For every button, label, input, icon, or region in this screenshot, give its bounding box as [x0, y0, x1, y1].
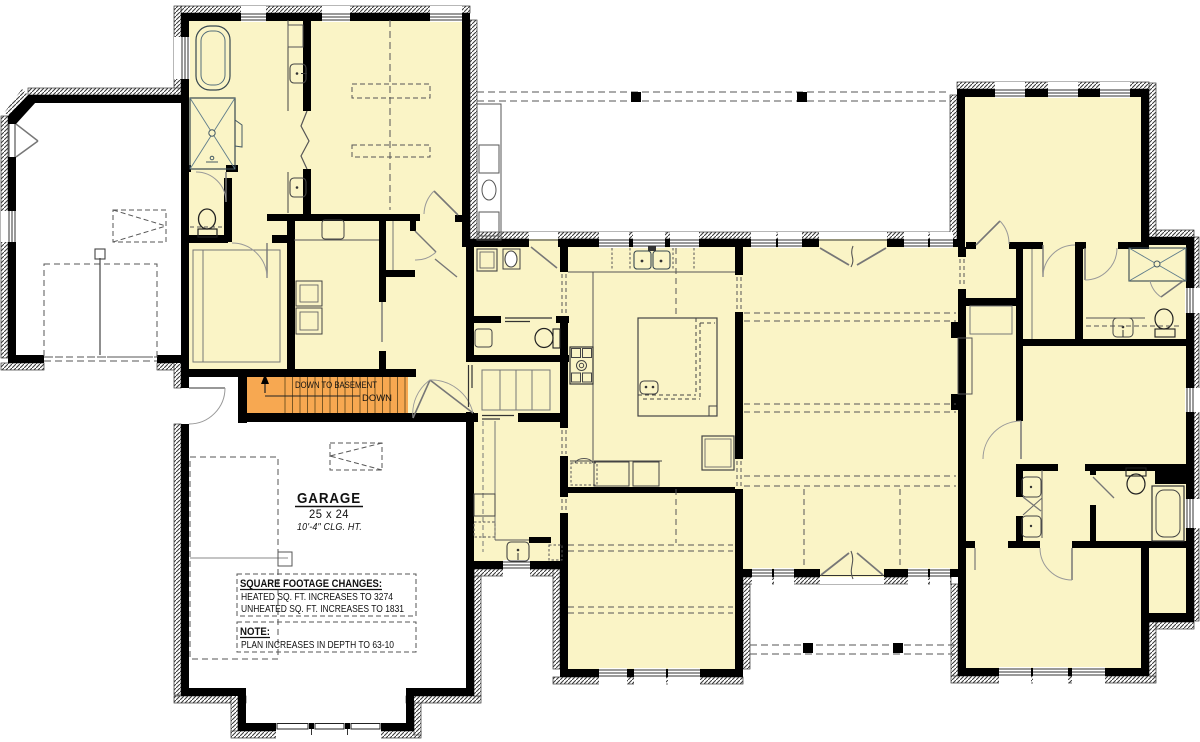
svg-text:DOWN: DOWN [362, 393, 392, 404]
svg-text:DOWN TO BASEMENT: DOWN TO BASEMENT [295, 380, 377, 390]
svg-text:UNHEATED SQ. FT. INCREASES TO: UNHEATED SQ. FT. INCREASES TO 1831 [241, 603, 404, 615]
svg-text:10'-4" CLG. HT.: 10'-4" CLG. HT. [297, 521, 362, 533]
svg-text:NOTE:: NOTE: [240, 626, 270, 638]
svg-text:25 x 24: 25 x 24 [309, 507, 349, 521]
svg-text:GARAGE: GARAGE [297, 490, 361, 507]
svg-text:HEATED SQ. FT. INCREASES TO 32: HEATED SQ. FT. INCREASES TO 3274 [241, 591, 393, 603]
svg-text:PLAN INCREASES IN DEPTH TO 63-: PLAN INCREASES IN DEPTH TO 63-10 [241, 639, 394, 651]
svg-text:SQUARE FOOTAGE CHANGES:: SQUARE FOOTAGE CHANGES: [240, 578, 382, 590]
